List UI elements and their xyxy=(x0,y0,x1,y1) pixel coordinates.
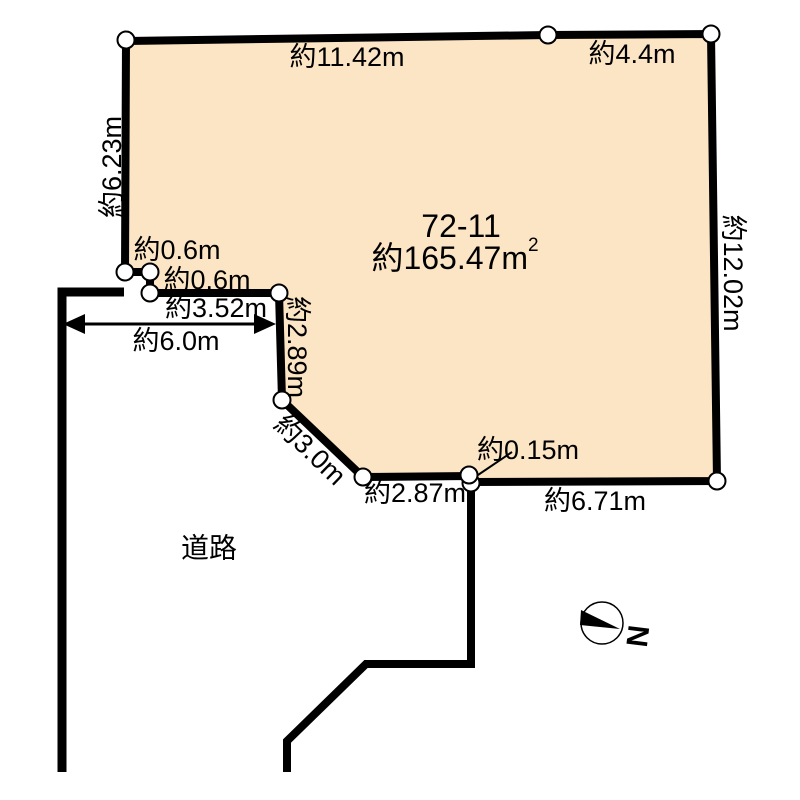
edge-label-bottom: 約6.71m xyxy=(544,486,646,516)
north-label: N xyxy=(619,623,654,649)
road-width-label: 約6.0m xyxy=(132,326,219,356)
road-label: 道路 xyxy=(181,533,237,564)
edge-label-notch-horizontal: 約3.52m xyxy=(165,293,267,323)
road-edge-left xyxy=(62,292,124,772)
edge-label-left: 約6.23m xyxy=(97,116,127,218)
vertex-marker xyxy=(117,264,134,281)
road-edge-middle xyxy=(287,481,471,772)
edge-label-right: 約12.02m xyxy=(718,214,748,331)
north-compass: N xyxy=(580,602,655,649)
vertex-marker xyxy=(540,27,557,44)
edge-label-jog: 約0.15m xyxy=(477,435,579,465)
edge-label-notch-step-upper: 約0.6m xyxy=(133,235,220,265)
vertex-marker xyxy=(703,26,720,43)
land-plot-diagram: 72-11 約165.47m2 約11.42m 約4.4m 約6.23m 約12… xyxy=(0,0,800,800)
edge-label-top-right: 約4.4m xyxy=(588,39,675,69)
vertex-marker xyxy=(709,473,726,490)
edge-label-top-left: 約11.42m xyxy=(289,42,404,72)
edge-label-bottom-left: 約2.87m xyxy=(364,478,466,508)
plot-survey-svg: 72-11 約165.47m2 約11.42m 約4.4m 約6.23m 約12… xyxy=(0,0,800,800)
edge-label-notch-vertical: 約2.89m xyxy=(282,296,312,398)
parcel-area-value: 約165.47m xyxy=(371,240,528,276)
vertex-marker xyxy=(142,264,159,281)
parcel-area-superscript: 2 xyxy=(528,235,539,256)
vertex-marker xyxy=(142,285,159,302)
vertex-marker xyxy=(118,32,135,49)
parcel-lot-number: 72-11 xyxy=(421,208,500,244)
edge-label-notch-step-lower: 約0.6m xyxy=(163,265,250,295)
parcel-area: 約165.47m2 xyxy=(371,235,538,277)
